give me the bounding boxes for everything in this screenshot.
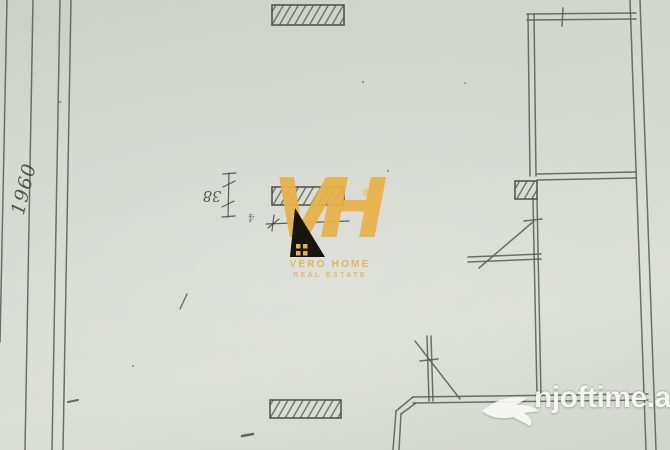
hatched-wall-right xyxy=(515,181,537,199)
vero-home-tagline: REAL ESTATE xyxy=(265,272,395,279)
hatched-wall-top xyxy=(272,5,344,25)
paper-marks xyxy=(68,294,253,436)
top-right-room-walls xyxy=(527,8,636,180)
door-leaf-bottom xyxy=(415,336,460,401)
vero-home-name: VERO HOME xyxy=(265,259,395,270)
vero-home-watermark: VH ® VERO HOME REAL ESTATE xyxy=(265,175,395,285)
njoftime-watermark: njoftime.al xyxy=(478,378,670,428)
floorplan-photo: 1960 38 4 47 VH ® VERO HOME REAL ESTATE … xyxy=(0,0,670,450)
handwritten-dimension-38: 38 xyxy=(199,185,225,203)
left-boundary-walls xyxy=(0,0,71,450)
njoftime-site-label: njoftime.al xyxy=(534,381,670,415)
interior-wall-right xyxy=(524,199,542,396)
handwritten-mark-4: 4 xyxy=(242,209,259,224)
door-swing-middle xyxy=(468,221,541,268)
registered-trademark-icon: ® xyxy=(363,186,372,200)
hatched-wall-bottom xyxy=(270,400,341,418)
house-icon xyxy=(289,206,329,260)
